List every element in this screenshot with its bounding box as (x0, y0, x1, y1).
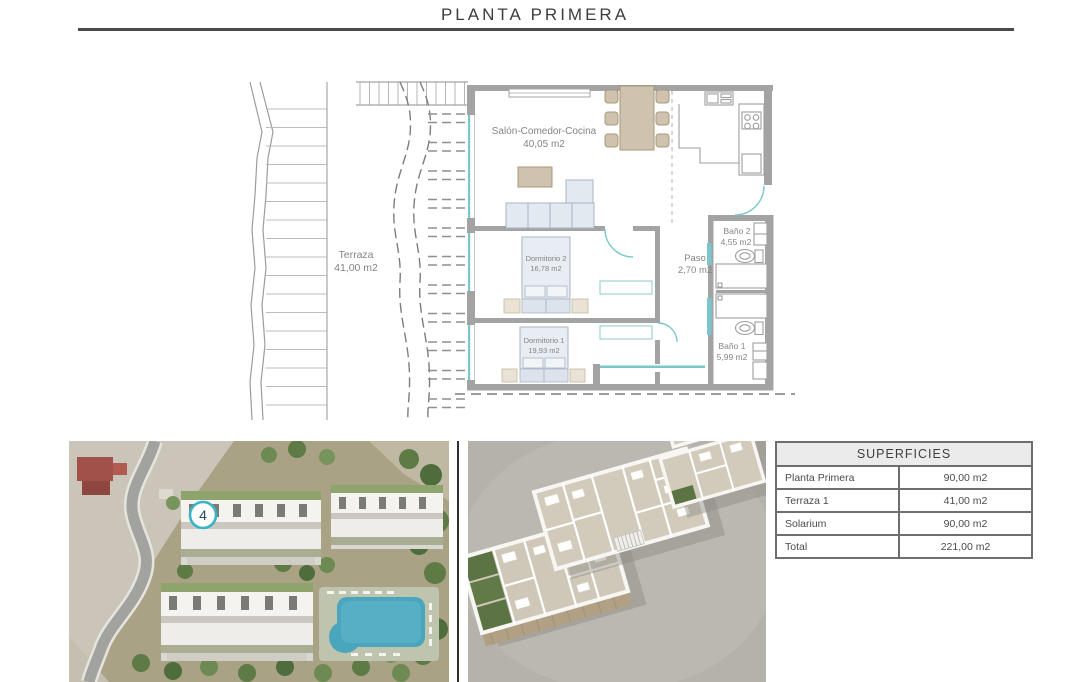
surfaces-header-row: SUPERFICIES (776, 442, 1032, 466)
surface-row-value: 90,00 m2 (899, 466, 1032, 489)
unit-marker-number: 4 (199, 507, 207, 523)
isometric-floor-render (468, 441, 766, 682)
surface-row-value: 41,00 m2 (899, 489, 1032, 512)
room-label-salon: Salón-Comedor-Cocina (492, 126, 597, 137)
surface-row-label: Total (776, 535, 899, 558)
panel-divider (457, 441, 459, 682)
building-lower-left (161, 583, 313, 661)
coffee-table (518, 167, 552, 187)
brochure-page: PLANTA PRIMERA (0, 0, 1070, 682)
table-row: Planta Primera 90,00 m2 (776, 466, 1032, 489)
room-area-terraza: 41,00 m2 (334, 262, 378, 274)
bedroom2-furniture (504, 237, 652, 313)
room-label-bano2: Baño 2 (724, 226, 751, 236)
bedroom1-furniture (502, 326, 652, 382)
room-label-dormitorio1: Dormitorio 1 (524, 336, 565, 345)
room-area-dormitorio2: 16,78 m2 (530, 264, 561, 273)
shower-tray (716, 264, 767, 288)
wardrobe (600, 326, 652, 339)
room-area-bano1: 5,99 m2 (717, 352, 748, 362)
surface-row-value: 221,00 m2 (899, 535, 1032, 558)
surface-row-value: 90,00 m2 (899, 512, 1032, 535)
room-area-dormitorio1: 19,93 m2 (528, 346, 559, 355)
room-area-bano2: 4,55 m2 (721, 237, 752, 247)
table-row: Total 221,00 m2 (776, 535, 1032, 558)
pool-area (319, 587, 439, 661)
windows (467, 115, 712, 380)
room-area-salon: 40,05 m2 (523, 139, 565, 150)
table-row: Solarium 90,00 m2 (776, 512, 1032, 535)
table-row: Terraza 1 41,00 m2 (776, 489, 1032, 512)
floor-plan-drawing: Terraza 41,00 m2 Salón-Comedor-Cocina 40… (0, 0, 1070, 435)
kitchen-fixtures (679, 92, 764, 175)
living-room-furniture (506, 86, 672, 228)
surface-row-label: Planta Primera (776, 466, 899, 489)
room-label-terraza: Terraza (338, 249, 373, 261)
room-label-paso: Paso (684, 253, 706, 264)
room-label-dormitorio2: Dormitorio 2 (526, 254, 567, 263)
surfaces-table: SUPERFICIES Planta Primera 90,00 m2 Terr… (775, 441, 1033, 559)
room-area-paso: 2,70 m2 (678, 265, 712, 276)
building-upper-right (331, 485, 443, 549)
dining-table (605, 86, 669, 150)
room-label-bano1: Baño 1 (719, 341, 746, 351)
shower-tray (716, 294, 767, 318)
surface-row-label: Solarium (776, 512, 899, 535)
wardrobe (600, 281, 652, 294)
surfaces-table-title: SUPERFICIES (776, 442, 1032, 466)
surface-row-label: Terraza 1 (776, 489, 899, 512)
unit-marker: 4 (190, 502, 216, 528)
site-aerial-render: 4 (69, 441, 449, 682)
